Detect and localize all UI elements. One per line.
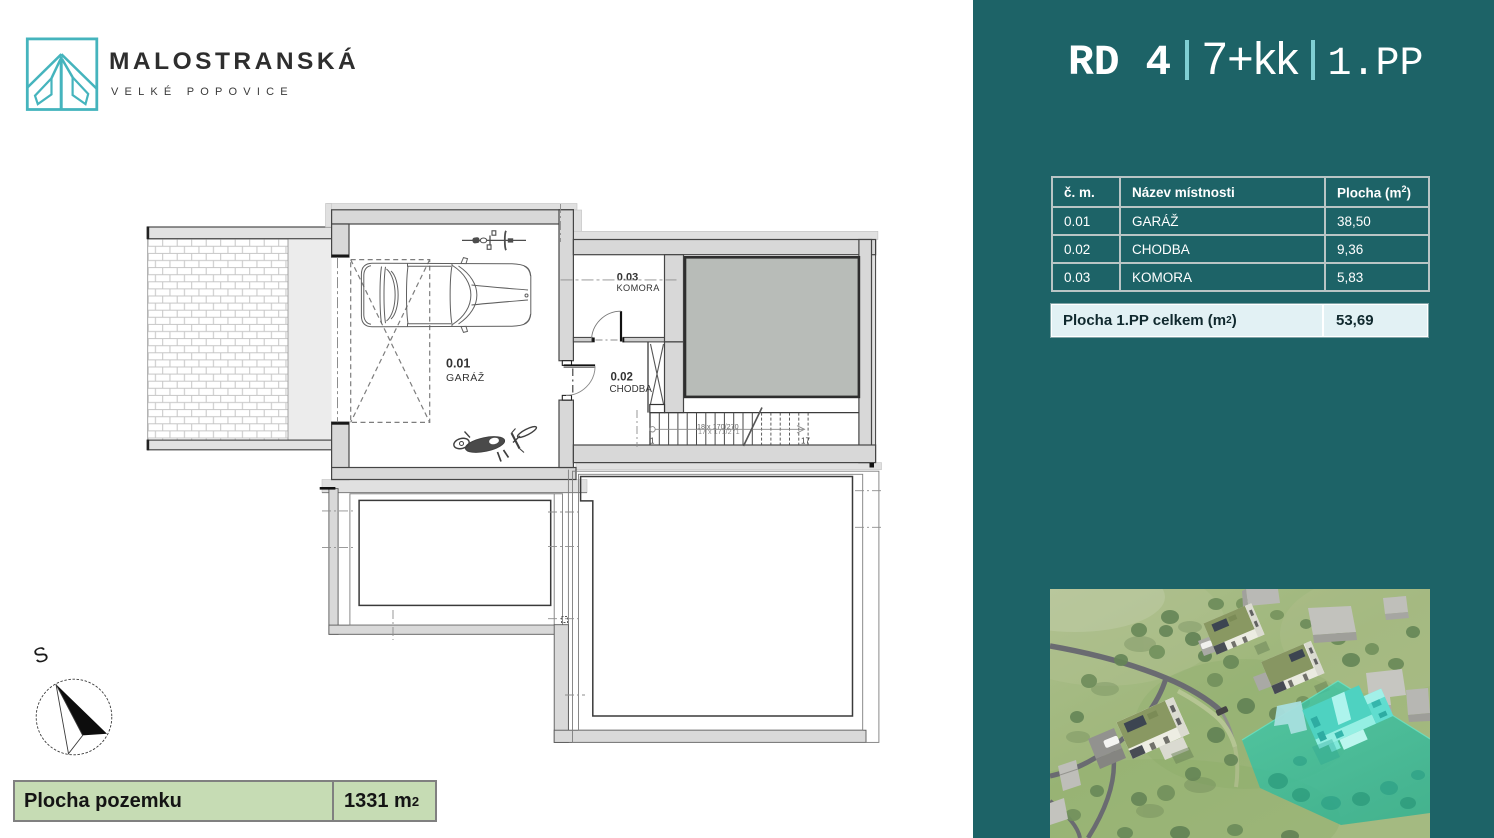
svg-text:0.03: 0.03	[617, 272, 638, 284]
svg-text:0.01: 0.01	[446, 357, 470, 371]
svg-text:17: 17	[801, 437, 810, 446]
svg-text:0.02: 0.02	[611, 371, 633, 383]
svg-text:CHODBA: CHODBA	[610, 384, 653, 395]
svg-text:1: 1	[650, 437, 655, 446]
svg-text:GARÁŽ: GARÁŽ	[446, 371, 485, 384]
svg-text:17 x 171/271: 17 x 171/271	[698, 427, 740, 436]
svg-text:KOMORA: KOMORA	[617, 283, 661, 293]
